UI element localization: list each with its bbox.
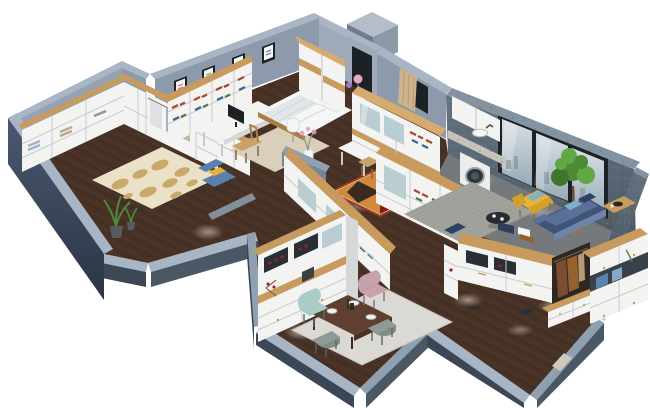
black-tray [613, 202, 623, 207]
floorplan-render-image [0, 0, 650, 408]
bottle [350, 303, 354, 310]
hanging-coat [578, 253, 585, 283]
hanging-coat [556, 259, 568, 298]
hanging-coat [567, 255, 579, 292]
apartment-3d-render [0, 0, 650, 408]
purple-ball-lamp [346, 82, 352, 88]
sink [473, 129, 488, 137]
entry-side-shelf [444, 244, 458, 300]
pink-ball-lamp [354, 75, 363, 84]
